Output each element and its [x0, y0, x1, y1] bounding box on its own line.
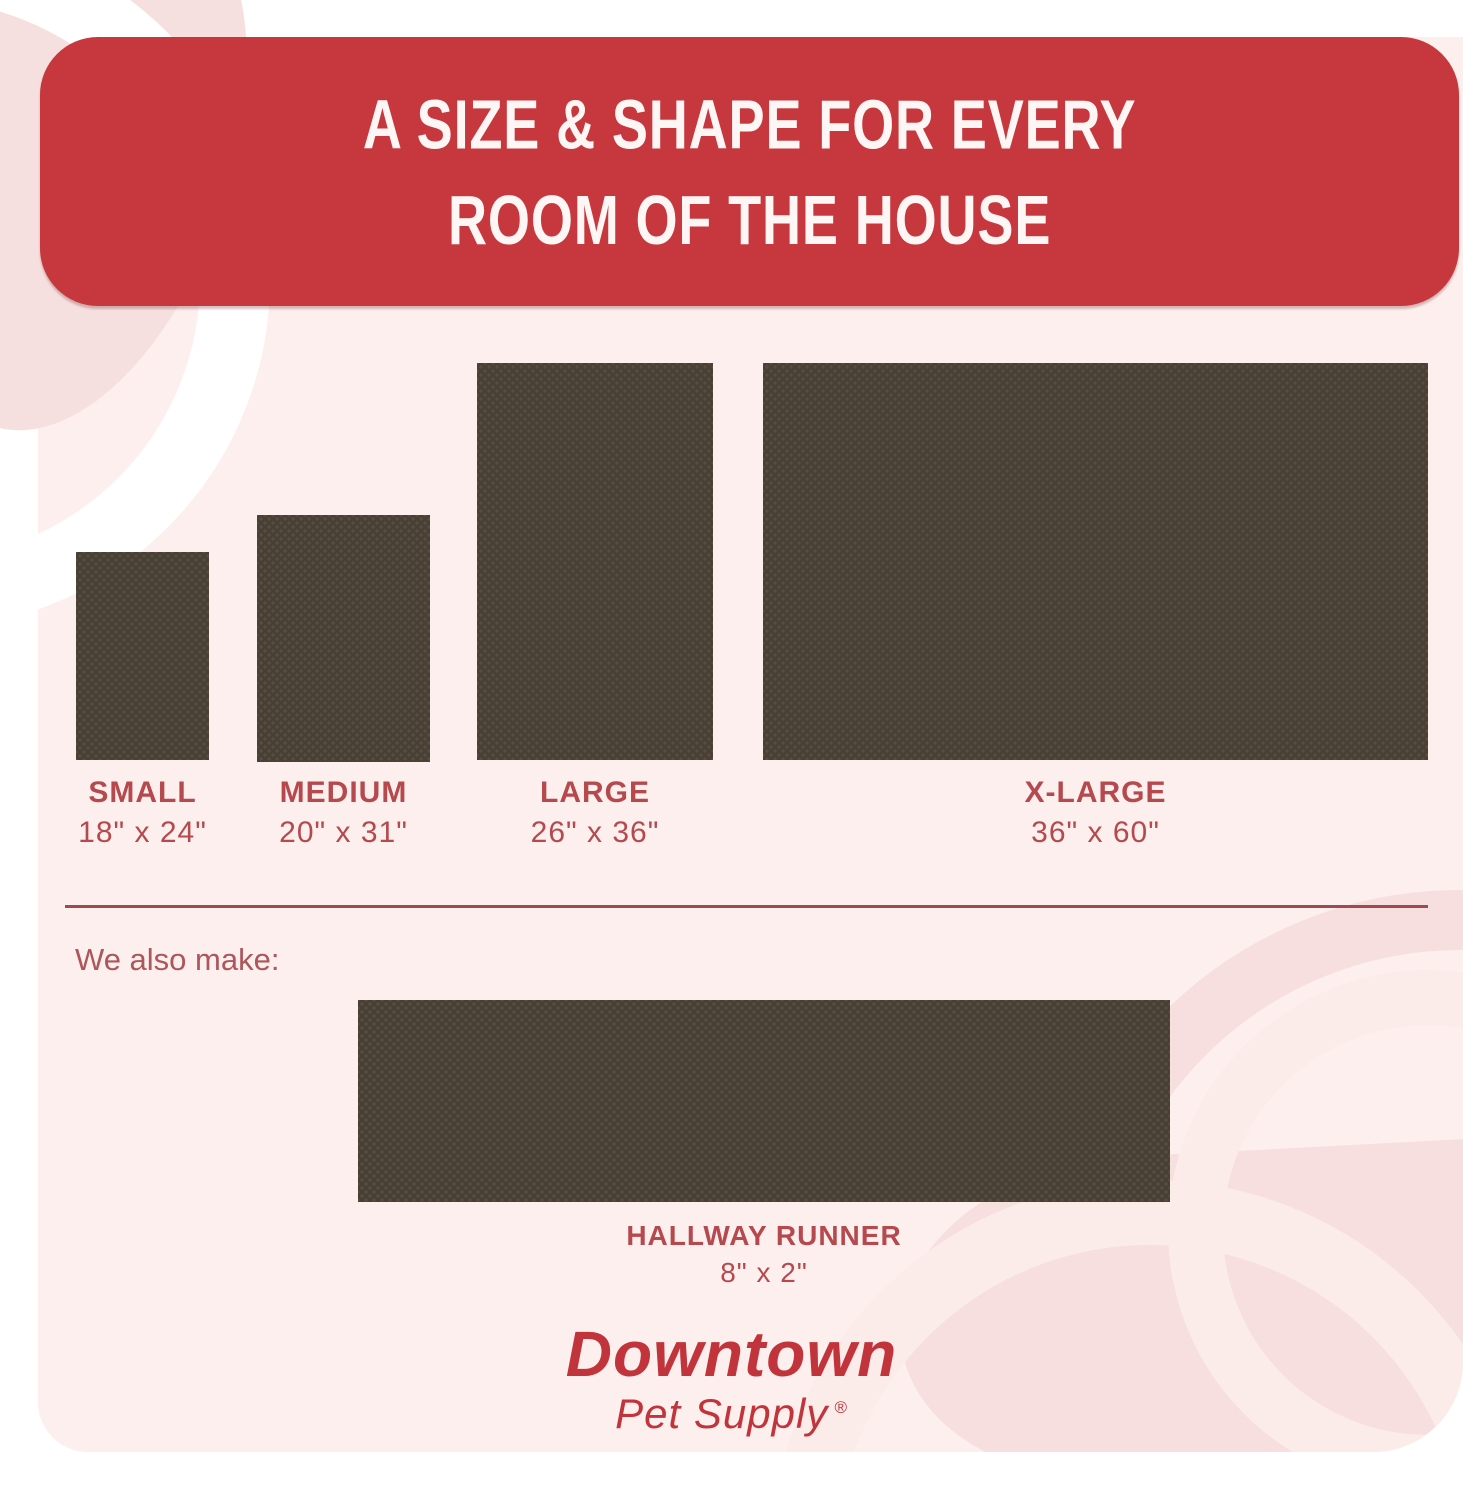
- mat-swatch-large: [477, 363, 713, 760]
- size-name: X-LARGE: [763, 776, 1428, 810]
- section-divider: [65, 905, 1428, 908]
- size-dimensions: 18" x 24": [76, 816, 209, 850]
- page-title: A SIZE & SHAPE FOR EVERY ROOM OF THE HOU…: [363, 76, 1136, 267]
- size-label-xlarge: X-LARGE 36" x 60": [763, 776, 1428, 850]
- size-label-small: SMALL 18" x 24": [76, 776, 209, 850]
- size-label-medium: MEDIUM 20" x 31": [257, 776, 430, 850]
- mat-swatch-small: [76, 552, 209, 760]
- size-name: MEDIUM: [257, 776, 430, 810]
- mat-swatch-hallway-runner: [358, 1000, 1170, 1202]
- brand-logo: Downtown Pet Supply®: [0, 1322, 1463, 1438]
- size-dimensions: 8" x 2": [358, 1257, 1170, 1289]
- brand-subtitle: Pet Supply®: [0, 1390, 1463, 1438]
- size-name: SMALL: [76, 776, 209, 810]
- also-make-note: We also make:: [75, 942, 279, 978]
- size-dimensions: 26" x 36": [477, 816, 713, 850]
- size-dimensions: 36" x 60": [763, 816, 1428, 850]
- brand-subtitle-text: Pet Supply: [615, 1390, 828, 1437]
- mat-swatch-medium: [257, 515, 430, 762]
- size-name: HALLWAY RUNNER: [358, 1220, 1170, 1252]
- page-title-line2: ROOM OF THE HOUSE: [363, 172, 1136, 267]
- size-label-hallway-runner: HALLWAY RUNNER 8" x 2": [358, 1220, 1170, 1289]
- registered-trademark-icon: ®: [834, 1398, 848, 1417]
- header-banner: A SIZE & SHAPE FOR EVERY ROOM OF THE HOU…: [40, 37, 1459, 306]
- size-dimensions: 20" x 31": [257, 816, 430, 850]
- page-title-line1: A SIZE & SHAPE FOR EVERY: [363, 76, 1136, 171]
- size-label-large: LARGE 26" x 36": [477, 776, 713, 850]
- brand-name: Downtown: [0, 1322, 1463, 1386]
- mat-swatch-xlarge: [763, 363, 1428, 760]
- size-name: LARGE: [477, 776, 713, 810]
